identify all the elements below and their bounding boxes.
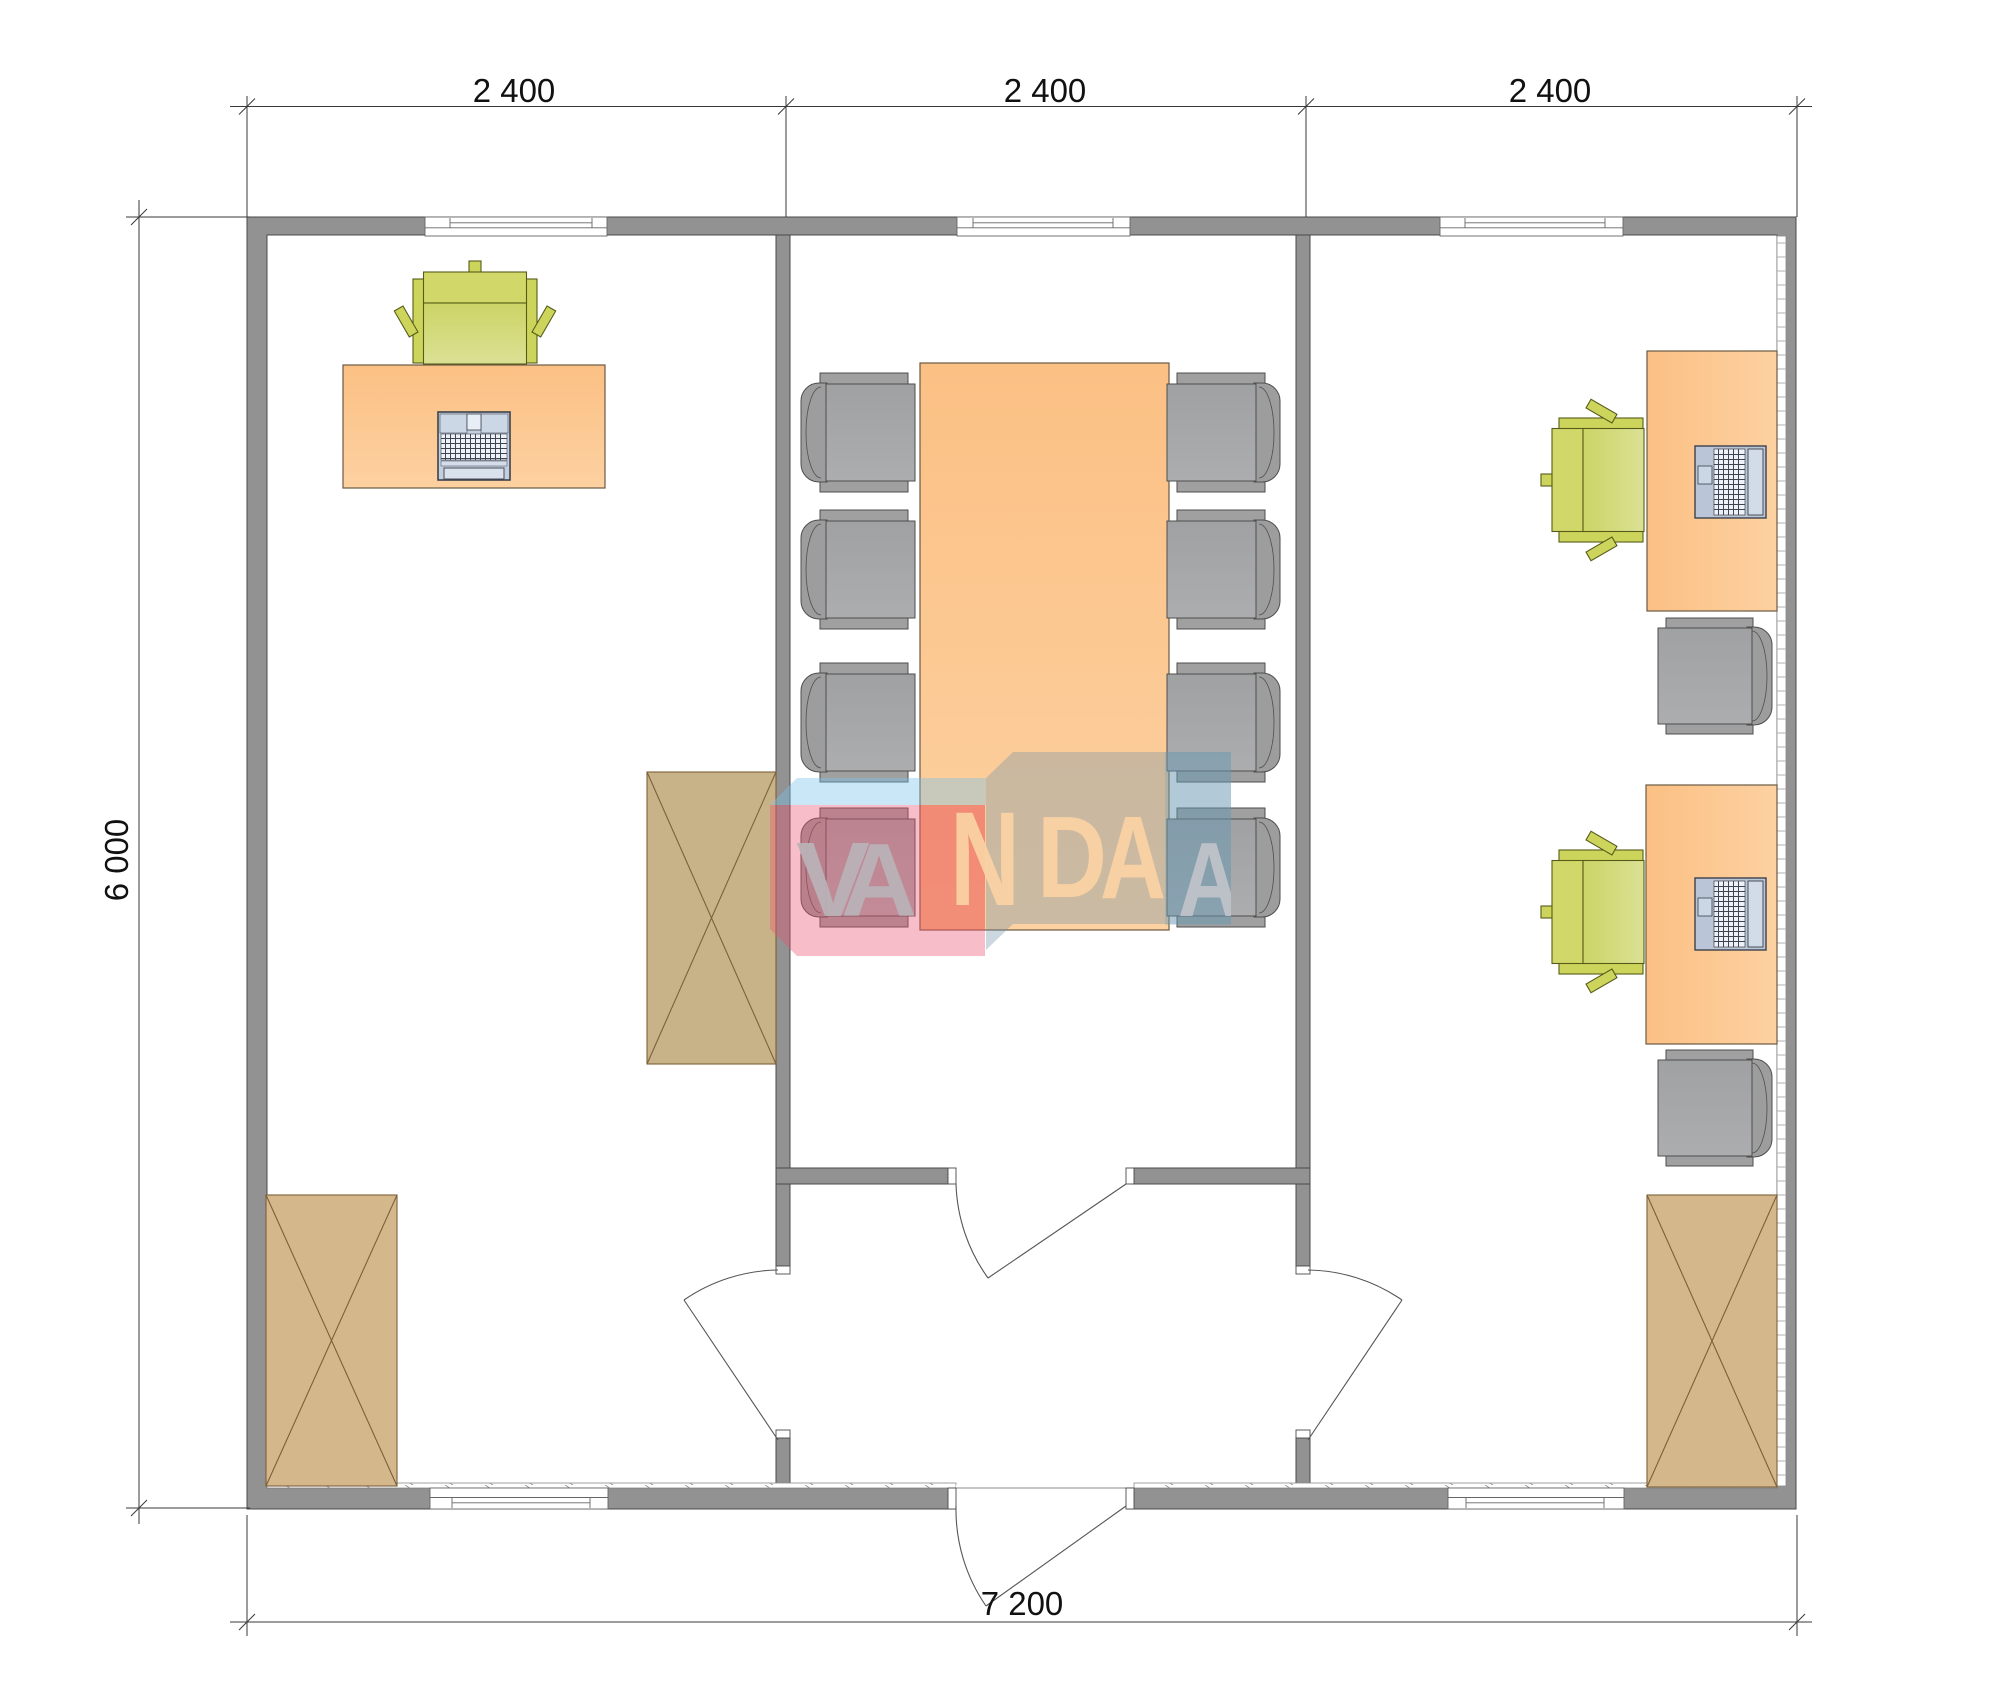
svg-text:D: D <box>1037 792 1107 922</box>
svg-text:2 400: 2 400 <box>1004 72 1087 109</box>
svg-text:2 400: 2 400 <box>1509 72 1592 109</box>
svg-text:6 000: 6 000 <box>98 819 135 902</box>
svg-text:2 400: 2 400 <box>473 72 556 109</box>
svg-text:7 200: 7 200 <box>981 1585 1064 1622</box>
svg-text:A: A <box>1178 821 1240 939</box>
svg-text:A: A <box>1100 792 1166 924</box>
svg-text:N: N <box>950 785 1020 934</box>
svg-text:A: A <box>841 823 917 939</box>
